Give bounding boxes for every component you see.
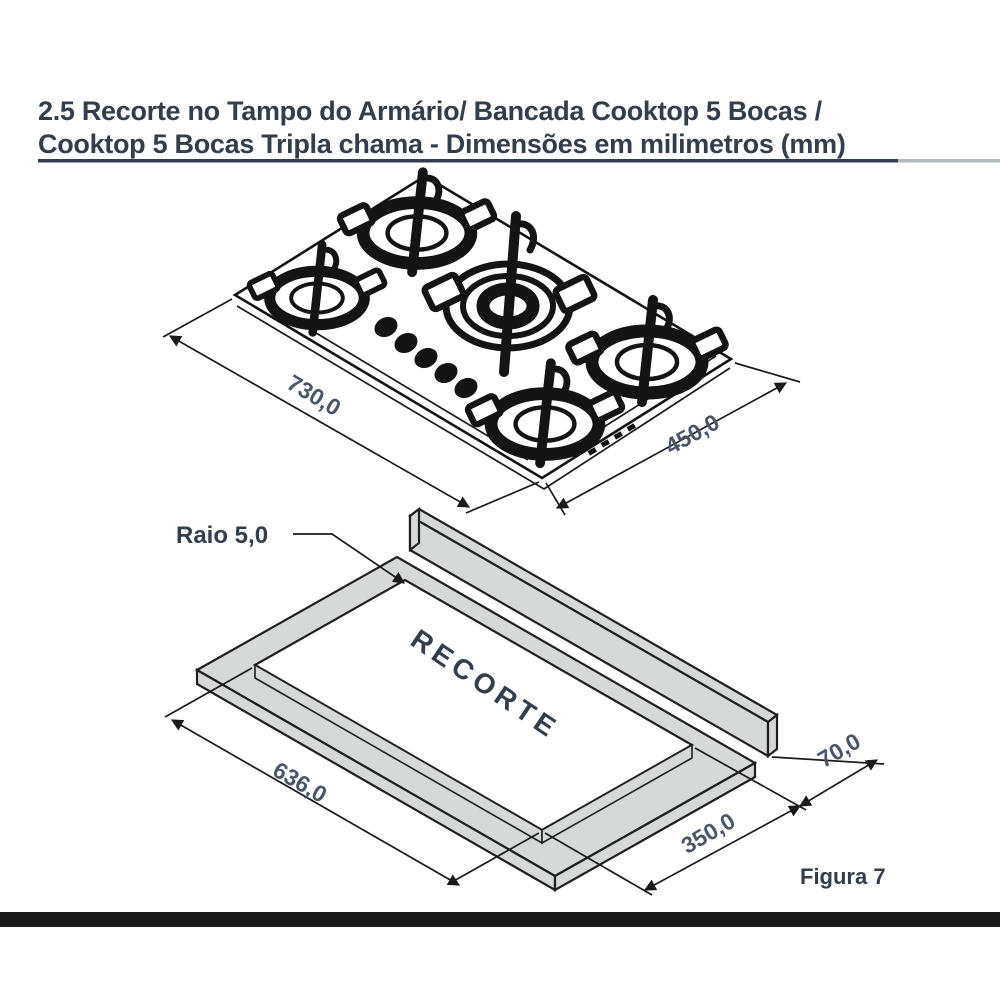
bottom-bar — [0, 912, 1000, 927]
manual-page: 2.5 Recorte no Tampo do Armário/ Bancada… — [0, 0, 1000, 1000]
raio-label: Raio 5,0 — [176, 522, 268, 549]
page-title-line-2: Cooktop 5 Bocas Tripla chama - Dimensões… — [38, 129, 846, 159]
cooktop-drawing: 730,0 450,0 — [163, 172, 800, 515]
title-underline-fade — [898, 159, 1000, 163]
extension-line — [163, 299, 232, 337]
dimension-line-70 — [800, 760, 877, 806]
extension-line — [466, 482, 539, 513]
dim-450-label: 450,0 — [661, 409, 724, 460]
dim-730-label: 730,0 — [283, 369, 346, 421]
figura-caption: Figura 7 — [800, 864, 886, 889]
dim-636-label: 636,0 — [269, 756, 332, 807]
title-underline — [38, 159, 898, 163]
extension-line — [546, 483, 565, 515]
page-title-line-1: 2.5 Recorte no Tampo do Armário/ Bancada… — [38, 96, 823, 126]
figure-canvas: 2.5 Recorte no Tampo do Armário/ Bancada… — [0, 0, 1000, 1000]
dim-70-label: 70,0 — [813, 728, 865, 773]
extension-line — [735, 363, 800, 382]
cutout-drawing: RECORTE Raio 5,0 636,0 350,0 70,0 Figura… — [165, 509, 886, 895]
